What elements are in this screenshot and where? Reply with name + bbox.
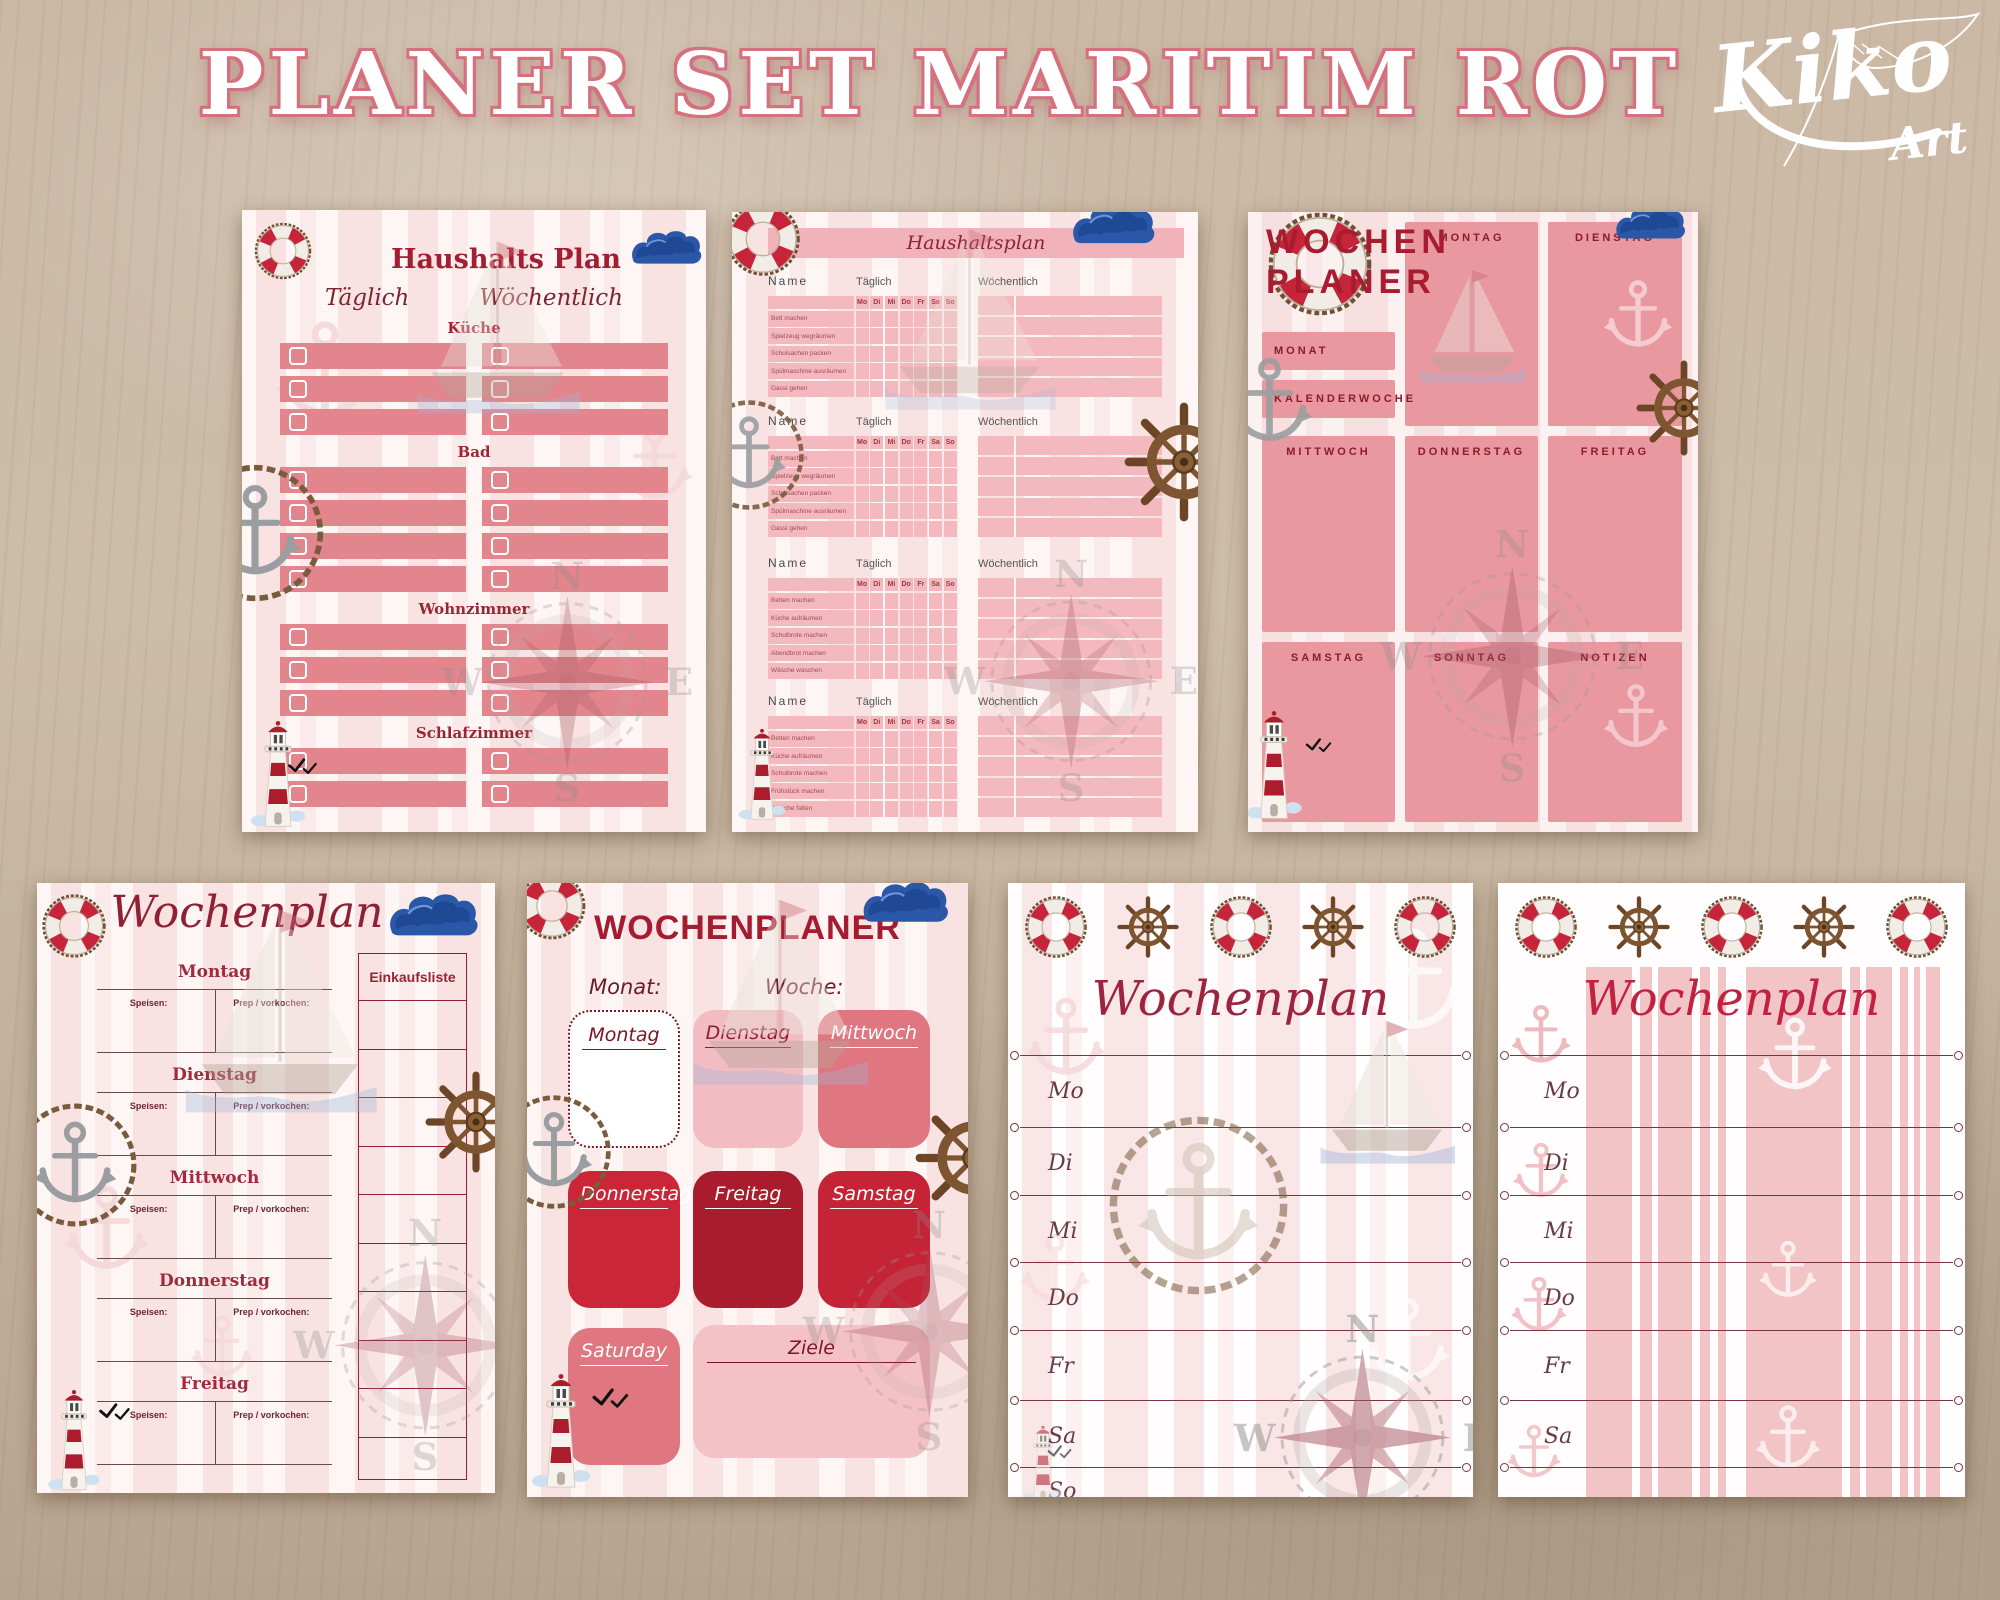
day-cell: [900, 663, 913, 679]
day-cell: [900, 486, 913, 502]
day-cell: [870, 783, 883, 799]
meal-day-block: DienstagSpeisen:Prep / vorkochen:: [97, 1052, 332, 1156]
kikoart-logo: Kiko Art: [1686, 8, 1986, 188]
day-cell: [929, 363, 942, 379]
day-cell: [856, 328, 869, 344]
day-cell: [944, 486, 957, 502]
task-row: [482, 657, 668, 683]
day-cell: [929, 645, 942, 661]
task-label: Bett machen: [768, 451, 854, 467]
prep-label: Prep / vorkochen:: [233, 1101, 309, 1111]
box-label: NOTIZEN: [1548, 642, 1682, 664]
day-header: So: [944, 296, 957, 309]
day-cell: [856, 593, 869, 609]
shopping-line: [359, 1098, 466, 1147]
title-line-2: PLANER: [1266, 262, 1451, 302]
weekly-row: [978, 578, 1162, 597]
checkbox: [491, 413, 509, 431]
day-label: Di: [1544, 1151, 1569, 1176]
day-cell: [885, 731, 898, 747]
weekly-notes-grid: [978, 436, 1162, 537]
checklist-columns: [242, 343, 706, 435]
column-divider: [215, 1402, 216, 1464]
section-labels: NameTäglichWöchentlich: [768, 692, 1162, 716]
meal-label: Speisen:: [130, 1307, 168, 1317]
checkbox: [289, 752, 307, 770]
day-cell: [885, 328, 898, 344]
sheet-wochenplan-streifen: Wochenplan MoDiMiDoFrSa: [1498, 883, 1965, 1497]
day-cell: [870, 381, 883, 397]
checkbox: [491, 347, 509, 365]
day-header-row: MoDiMiDoFrSaSo: [768, 296, 957, 309]
lifebuoy-icon: [1020, 891, 1092, 963]
day-header: Di: [870, 296, 883, 309]
day-header: Do: [900, 578, 913, 591]
section-labels: NameTäglichWöchentlich: [768, 412, 1162, 436]
planner-box-donnerstag: DONNERSTAG: [1405, 436, 1538, 632]
room-section-label: Bad: [242, 443, 706, 461]
task-row: [280, 343, 466, 369]
day-name: Montag: [97, 949, 332, 982]
anchor-watermark-icon: [1360, 1295, 1455, 1390]
corner-cell: [768, 296, 854, 309]
weekly-row: [978, 358, 1162, 377]
checklist-columns: [242, 748, 706, 807]
pink-stripe: [1718, 967, 1726, 1497]
day-label: Do: [1544, 1286, 1575, 1311]
day-cell: [870, 645, 883, 661]
day-cell: [885, 593, 898, 609]
lifebuoy-icon: [1696, 891, 1768, 963]
weekly-notes-grid: [978, 296, 1162, 397]
column-divider: [215, 1196, 216, 1258]
planner-box-samstag: SAMSTAG: [1262, 642, 1395, 822]
prep-label: Prep / vorkochen:: [233, 1204, 309, 1214]
task-row: Spielzeug wegräumen: [768, 468, 957, 484]
day-cell: [929, 783, 942, 799]
day-cell: [929, 468, 942, 484]
checkbox: [289, 694, 307, 712]
task-label: Frühstück machen: [768, 783, 854, 799]
day-cell: [944, 311, 957, 327]
checkbox: [491, 570, 509, 588]
corner-cell: [768, 716, 854, 729]
box-label: Freitag: [705, 1183, 791, 1209]
day-cell: [856, 801, 869, 817]
checkbox: [491, 380, 509, 398]
wochenplaner-title: WOCHENPLANER: [527, 909, 968, 948]
task-row: [280, 624, 466, 650]
day-cell: [900, 328, 913, 344]
day-name: Dienstag: [97, 1052, 332, 1085]
family-member-section: NameTäglichWöchentlichMoDiMiDoFrSaSoBett…: [768, 692, 1162, 824]
day-cell: [870, 346, 883, 362]
task-row: [280, 500, 466, 526]
task-row: Frühstück machen: [768, 783, 957, 799]
name-label: Name: [768, 414, 808, 428]
meal-fields: Speisen:Prep / vorkochen:: [97, 1092, 332, 1155]
checkbox: [289, 504, 307, 522]
task-row: Küche aufräumen: [768, 610, 957, 626]
day-cell: [929, 311, 942, 327]
compass-rose: NWES: [1240, 1315, 1473, 1497]
task-row: [280, 566, 466, 592]
box-label: FREITAG: [1548, 436, 1682, 458]
pink-stripe: [1866, 967, 1892, 1497]
day-cell: [885, 783, 898, 799]
day-cell: [929, 748, 942, 764]
checklist-columns: [242, 624, 706, 716]
weekly-grid-divider: [1014, 296, 1016, 397]
day-header: Sa: [929, 436, 942, 449]
anchor-rope-icon: [1106, 1113, 1291, 1298]
day-cell: [929, 593, 942, 609]
day-cell: [900, 748, 913, 764]
lifebuoy-icon: [1881, 891, 1953, 963]
meal-day-block: MittwochSpeisen:Prep / vorkochen:: [97, 1155, 332, 1259]
task-row: [482, 781, 668, 807]
daily-label: Täglich: [856, 696, 891, 708]
task-row: [482, 376, 668, 402]
day-cell: [914, 486, 927, 502]
task-label: Küche aufräumen: [768, 610, 854, 626]
shopping-line: [359, 1292, 466, 1341]
sheet-wochenplaner-boxen: WOCHENPLANER Monat: Woche: MontagDiensta…: [527, 883, 968, 1497]
day-label: Mi: [1048, 1219, 1078, 1244]
daily-label: Täglich: [856, 558, 891, 570]
nautical-icon-border: [1020, 889, 1461, 965]
task-label: Küche aufräumen: [768, 748, 854, 764]
daily-label: Täglich: [856, 276, 891, 288]
day-cell: [914, 328, 927, 344]
weekly-grid-divider: [1014, 436, 1016, 537]
day-cell: [929, 486, 942, 502]
checkbox: [289, 380, 307, 398]
day-header: Fr: [914, 296, 927, 309]
day-header: Fr: [914, 716, 927, 729]
checkbox: [289, 471, 307, 489]
day-cell: [929, 663, 942, 679]
day-cell: [870, 451, 883, 467]
day-header: Mi: [885, 578, 898, 591]
checkbox: [491, 471, 509, 489]
weekly-row: [978, 757, 1162, 776]
weekly-checklist-column: [482, 343, 668, 435]
shopping-line: [359, 1244, 466, 1293]
task-label: Gassi gehen: [768, 381, 854, 397]
day-label: Fr: [1544, 1354, 1570, 1379]
day-cell: [914, 521, 927, 537]
day-cell: [885, 748, 898, 764]
task-label: Spielzeug wegräumen: [768, 468, 854, 484]
name-label: Name: [768, 556, 808, 570]
task-row: [482, 409, 668, 435]
pink-stripe: [1914, 967, 1920, 1497]
weekly-row: [978, 798, 1162, 817]
name-label: Name: [768, 694, 808, 708]
day-cell: [885, 645, 898, 661]
planner-box-sonntag: SONNTAG: [1405, 642, 1538, 822]
shopping-list-box: Einkaufsliste: [358, 953, 467, 1480]
daily-checklist-column: [280, 467, 466, 592]
day-label: Mo: [1048, 1079, 1084, 1104]
sheet-haushaltsplan-tabelle: Haushaltsplan NameTäglichWöchentlichMoDi…: [732, 212, 1198, 832]
day-cell: [944, 748, 957, 764]
shopping-line: [359, 1147, 466, 1196]
day-cell: [929, 381, 942, 397]
compass-letter-e: E: [1170, 659, 1198, 703]
day-header: Mo: [856, 296, 869, 309]
pink-stripe: [1658, 967, 1692, 1497]
weekly-row: [978, 619, 1162, 638]
task-row: Schulsachen packen: [768, 486, 957, 502]
checkbox: [289, 628, 307, 646]
meal-label: Speisen:: [130, 1410, 168, 1420]
day-cell: [944, 801, 957, 817]
day-cell: [929, 801, 942, 817]
pink-stripe: [1640, 967, 1652, 1497]
shopping-line: [359, 1341, 466, 1390]
weekly-notes-grid: [978, 578, 1162, 679]
day-header: Di: [870, 436, 883, 449]
corner-cell: [768, 578, 854, 591]
weekly-label: Wöchentlich: [978, 558, 1038, 570]
day-label: Fr: [1048, 1354, 1074, 1379]
day-header-row: MoDiMiDoFrSaSo: [768, 578, 957, 591]
task-row: [280, 748, 466, 774]
weekly-row: [978, 317, 1162, 336]
day-cell: [900, 346, 913, 362]
task-row: [482, 690, 668, 716]
day-cell: [870, 731, 883, 747]
day-cell: [914, 628, 927, 644]
weekly-row: [978, 337, 1162, 356]
pink-stripe: [1900, 967, 1908, 1497]
task-label: Spielzeug wegräumen: [768, 328, 854, 344]
weekly-row: [978, 378, 1162, 397]
day-header: Fr: [914, 436, 927, 449]
day-cell: [856, 381, 869, 397]
day-cell: [944, 645, 957, 661]
task-row: [482, 624, 668, 650]
task-label: Schulbrote machen: [768, 766, 854, 782]
sheet-wochenplan-speisen: Wochenplan MontagSpeisen:Prep / vorkoche…: [37, 883, 495, 1493]
day-cell: [870, 610, 883, 626]
weekly-notes-grid: [978, 716, 1162, 817]
compass-letter-e: E: [1463, 1416, 1473, 1460]
checkbox: [491, 785, 509, 803]
sailboat-icon: [1306, 1005, 1468, 1183]
day-cell: [944, 328, 957, 344]
column-divider: [215, 1299, 216, 1361]
box-label: Ziele: [707, 1337, 916, 1363]
wheel-icon: [1117, 896, 1179, 958]
section-labels: NameTäglichWöchentlich: [768, 272, 1162, 296]
birds-icon: [590, 1388, 632, 1409]
room-section-label: Wohnzimmer: [242, 600, 706, 618]
name-label: Name: [768, 274, 808, 288]
day-cell: [914, 363, 927, 379]
day-cell: [900, 801, 913, 817]
day-cell: [856, 645, 869, 661]
wochen-planer-title: WOCHEN PLANER: [1266, 222, 1451, 302]
daily-task-table: MoDiMiDoFrSaSoBetten machenKüche aufräum…: [768, 578, 957, 680]
room-checklists: KücheBadWohnzimmerSchlafzimmer: [242, 319, 706, 807]
daily-task-table: MoDiMiDoFrSaSoBett machenSpielzeug wegrä…: [768, 296, 957, 398]
planner-box-mittwoch: MITTWOCH: [1262, 436, 1395, 632]
day-cell: [944, 628, 957, 644]
day-cell: [870, 468, 883, 484]
day-cell: [856, 503, 869, 519]
weekly-row: [978, 498, 1162, 517]
checkbox: [491, 661, 509, 679]
day-cell: [900, 645, 913, 661]
day-cell: [856, 663, 869, 679]
weekly-row: [978, 477, 1162, 496]
weekly-grid-divider: [1014, 716, 1016, 817]
meal-day-block: DonnerstagSpeisen:Prep / vorkochen:: [97, 1258, 332, 1362]
task-row: [280, 409, 466, 435]
task-row: Bett machen: [768, 451, 957, 467]
box-label: Mittwoch: [830, 1022, 917, 1048]
day-cell: [870, 593, 883, 609]
task-row: [482, 343, 668, 369]
wochenplan-title: Wochenplan: [1008, 971, 1473, 1027]
day-cell: [885, 311, 898, 327]
day-box-dienstag: Dienstag: [693, 1010, 803, 1148]
day-box-montag: Montag: [568, 1010, 680, 1148]
planner-box-dienstag: DIENSTAG: [1548, 222, 1682, 426]
day-cell: [870, 363, 883, 379]
column-divider: [215, 1093, 216, 1155]
daily-checklist-column: [280, 343, 466, 435]
day-header: Fr: [914, 578, 927, 591]
day-cell: [914, 468, 927, 484]
day-cell: [870, 503, 883, 519]
meal-label: Speisen:: [130, 1204, 168, 1214]
weekly-row: [978, 640, 1162, 659]
day-cell: [885, 468, 898, 484]
day-cell: [885, 363, 898, 379]
pink-stripe: [1850, 967, 1860, 1497]
day-cell: [900, 468, 913, 484]
shopping-line: [359, 1389, 466, 1438]
pink-stripe: [1586, 967, 1632, 1497]
wheel-icon: [1793, 896, 1855, 958]
day-header: Sa: [929, 716, 942, 729]
weekly-row: [978, 599, 1162, 618]
room-section-label: Küche: [242, 319, 706, 337]
sheet-haushalts-plan: Haushalts Plan Täglich Wöchentlich Küche…: [242, 210, 706, 832]
nautical-icon-border: [1510, 889, 1953, 965]
day-header: So: [944, 436, 957, 449]
task-label: Schulbrote machen: [768, 628, 854, 644]
woche-label: Woche:: [765, 975, 843, 999]
compass-letter-n: N: [1346, 1307, 1380, 1351]
shopping-lines: [359, 1001, 466, 1485]
day-header: Mo: [856, 436, 869, 449]
day-cell: [914, 748, 927, 764]
checkbox: [491, 504, 509, 522]
weekly-row: [978, 660, 1162, 679]
day-box-saturday: Saturday: [568, 1328, 680, 1465]
week-rule-line: [1510, 1262, 1953, 1263]
day-cell: [856, 748, 869, 764]
day-cell: [914, 593, 927, 609]
day-box-samstag: Samstag: [818, 1171, 930, 1308]
task-row: [482, 500, 668, 526]
weekly-row: [978, 436, 1162, 455]
day-header: Mo: [856, 716, 869, 729]
week-rule-line: [1020, 1330, 1461, 1331]
task-row: [482, 467, 668, 493]
week-rule-line: [1020, 1400, 1461, 1401]
checkbox: [289, 570, 307, 588]
page-title: PLANER SET MARITIM ROT: [120, 34, 1760, 135]
checklist-columns: [242, 467, 706, 592]
day-cell: [856, 610, 869, 626]
box-label: Dienstag: [705, 1022, 791, 1048]
day-label: So: [1048, 1479, 1076, 1497]
task-row: [280, 657, 466, 683]
box-label: KALENDERWOCHE: [1262, 380, 1395, 418]
weekly-checklist-column: [482, 748, 668, 807]
day-header: Di: [870, 716, 883, 729]
day-cell: [870, 521, 883, 537]
task-row: Schulsachen packen: [768, 346, 957, 362]
day-header: Do: [900, 296, 913, 309]
day-box-ziele: Ziele: [693, 1325, 930, 1458]
meal-label: Speisen:: [130, 1101, 168, 1111]
box-label: MITTWOCH: [1262, 436, 1395, 458]
task-row: [482, 566, 668, 592]
task-row: Bett machen: [768, 311, 957, 327]
day-cell: [900, 731, 913, 747]
task-row: Schulbrote machen: [768, 628, 957, 644]
day-cell: [870, 628, 883, 644]
day-cell: [944, 521, 957, 537]
day-cell: [870, 663, 883, 679]
day-header: Do: [900, 436, 913, 449]
day-cell: [856, 783, 869, 799]
daily-label: Täglich: [856, 416, 891, 428]
day-box-freitag: Freitag: [693, 1171, 803, 1308]
day-label: Sa: [1048, 1424, 1076, 1449]
day-label: Di: [1048, 1151, 1073, 1176]
box-label: Saturday: [580, 1340, 667, 1366]
title-line-1: WOCHEN: [1266, 222, 1451, 262]
day-header: Mi: [885, 296, 898, 309]
weekly-grid-divider: [1014, 578, 1016, 679]
task-row: Schulbrote machen: [768, 766, 957, 782]
day-cell: [885, 610, 898, 626]
task-label: Wäsche waschen: [768, 663, 854, 679]
family-member-section: NameTäglichWöchentlichMoDiMiDoFrSaSoBett…: [768, 272, 1162, 404]
day-header: So: [944, 716, 957, 729]
daily-task-table: MoDiMiDoFrSaSoBett machenSpielzeug wegrä…: [768, 436, 957, 538]
weekly-row: [978, 716, 1162, 735]
task-row: [280, 467, 466, 493]
day-cell: [885, 766, 898, 782]
day-label: Mo: [1544, 1079, 1580, 1104]
task-row: Spülmaschine ausräumen: [768, 503, 957, 519]
week-rule-line: [1020, 1195, 1461, 1196]
task-label: Spülmaschine ausräumen: [768, 363, 854, 379]
week-rule-line: [1020, 1127, 1461, 1128]
day-name: Mittwoch: [97, 1155, 332, 1188]
box-label: SONNTAG: [1405, 642, 1538, 664]
week-rule-line: [1510, 1467, 1953, 1468]
